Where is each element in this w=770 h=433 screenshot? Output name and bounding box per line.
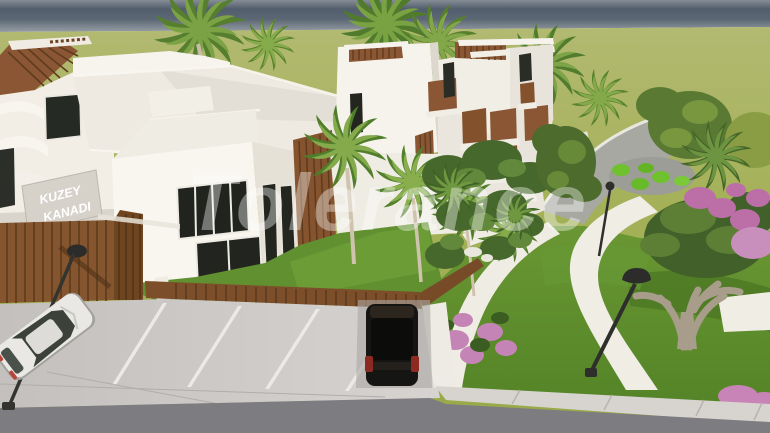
svg-text:Tolerance: Tolerance [187, 158, 589, 247]
